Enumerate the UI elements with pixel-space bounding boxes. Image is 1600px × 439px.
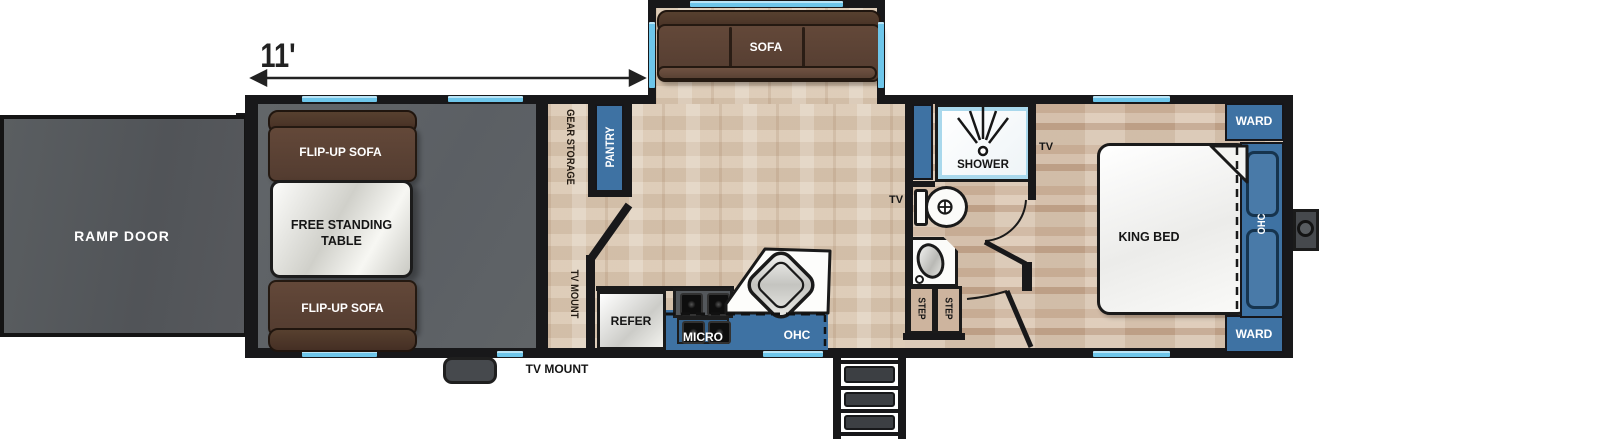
bath-cabinet bbox=[912, 104, 933, 180]
window bbox=[878, 22, 884, 88]
bath-tv-label: TV bbox=[884, 194, 908, 206]
flip-up-sofa-bottom-roll bbox=[268, 328, 417, 352]
entry-step-rail-left bbox=[833, 356, 841, 439]
bedroom-tv-label: TV bbox=[1034, 141, 1058, 153]
entry-step-tread bbox=[844, 415, 895, 430]
stove-burner bbox=[680, 293, 703, 316]
pantry-label: PANTRY bbox=[604, 115, 616, 180]
window bbox=[763, 351, 823, 357]
window bbox=[497, 351, 523, 357]
tv-mount-wall bbox=[586, 255, 595, 348]
sofa-front-lip bbox=[657, 66, 877, 80]
step-right-label: STEP bbox=[943, 292, 954, 326]
entry-step-tread bbox=[844, 392, 895, 407]
bath-right-wall bbox=[1028, 103, 1036, 200]
entry-step-bar bbox=[841, 386, 898, 390]
ward-bottom-label: WARD bbox=[1227, 327, 1281, 341]
window bbox=[690, 1, 843, 7]
step-left-label: STEP bbox=[916, 292, 927, 326]
window bbox=[1093, 96, 1170, 102]
ward-top-label: WARD bbox=[1227, 114, 1281, 128]
entry-step-bar bbox=[841, 432, 898, 436]
sofa-label: SOFA bbox=[731, 40, 801, 54]
right-wall bbox=[1283, 95, 1293, 358]
rv-floorplan: RAMP DOOR SOFA FLIP-UP SOFA FREE STANDIN… bbox=[0, 0, 1600, 439]
left-wall bbox=[245, 95, 258, 358]
ramp-door bbox=[0, 115, 248, 337]
flip-up-sofa-top-label: FLIP-UP SOFA bbox=[270, 145, 411, 159]
dimension-arrow bbox=[252, 71, 644, 85]
pantry-bottom-wall bbox=[588, 190, 632, 197]
micro-label: MICRO bbox=[679, 330, 727, 344]
garage-wall bbox=[536, 104, 548, 348]
king-bed bbox=[1097, 143, 1250, 315]
hall-wall bbox=[1022, 262, 1032, 291]
free-standing-table-label-1: FREE STANDING bbox=[272, 218, 411, 232]
king-bed-label: KING BED bbox=[1104, 230, 1194, 244]
pantry-wall bbox=[624, 104, 632, 194]
kitchen-ohc-label: OHC bbox=[773, 328, 821, 342]
entry-step-tread bbox=[844, 366, 895, 383]
ramp-door-label: RAMP DOOR bbox=[52, 228, 192, 244]
window bbox=[448, 96, 523, 102]
hitch-ring bbox=[1297, 220, 1314, 237]
exterior-tv-mount-label: TV MOUNT bbox=[517, 362, 597, 376]
garage-exterior-step bbox=[443, 357, 497, 384]
bath-cabinet-wall bbox=[905, 181, 935, 187]
dimension-label: 11' bbox=[252, 36, 303, 76]
window bbox=[649, 22, 655, 88]
window bbox=[1093, 351, 1170, 357]
vanity-faucet bbox=[915, 275, 924, 284]
gear-storage-label: GEAR STORAGE bbox=[564, 110, 576, 183]
entry-step-bar bbox=[841, 409, 898, 413]
refer-label: REFER bbox=[599, 314, 663, 328]
entry-step-bar bbox=[841, 360, 898, 364]
window bbox=[302, 96, 377, 102]
step-bottom-wall bbox=[903, 333, 965, 340]
toilet-bowl bbox=[925, 186, 968, 228]
tv-mount-wall-label: TV MOUNT bbox=[568, 266, 580, 322]
bedroom-ohc-label: OHC bbox=[1256, 208, 1268, 240]
bedroom-ohc-door bbox=[1246, 229, 1279, 309]
shower-label: SHOWER bbox=[951, 159, 1015, 172]
stove-burner bbox=[707, 293, 730, 316]
entry-step-rail-right bbox=[898, 356, 906, 439]
free-standing-table-label-2: TABLE bbox=[272, 234, 411, 248]
flip-up-sofa-bottom-label: FLIP-UP SOFA bbox=[272, 301, 413, 315]
